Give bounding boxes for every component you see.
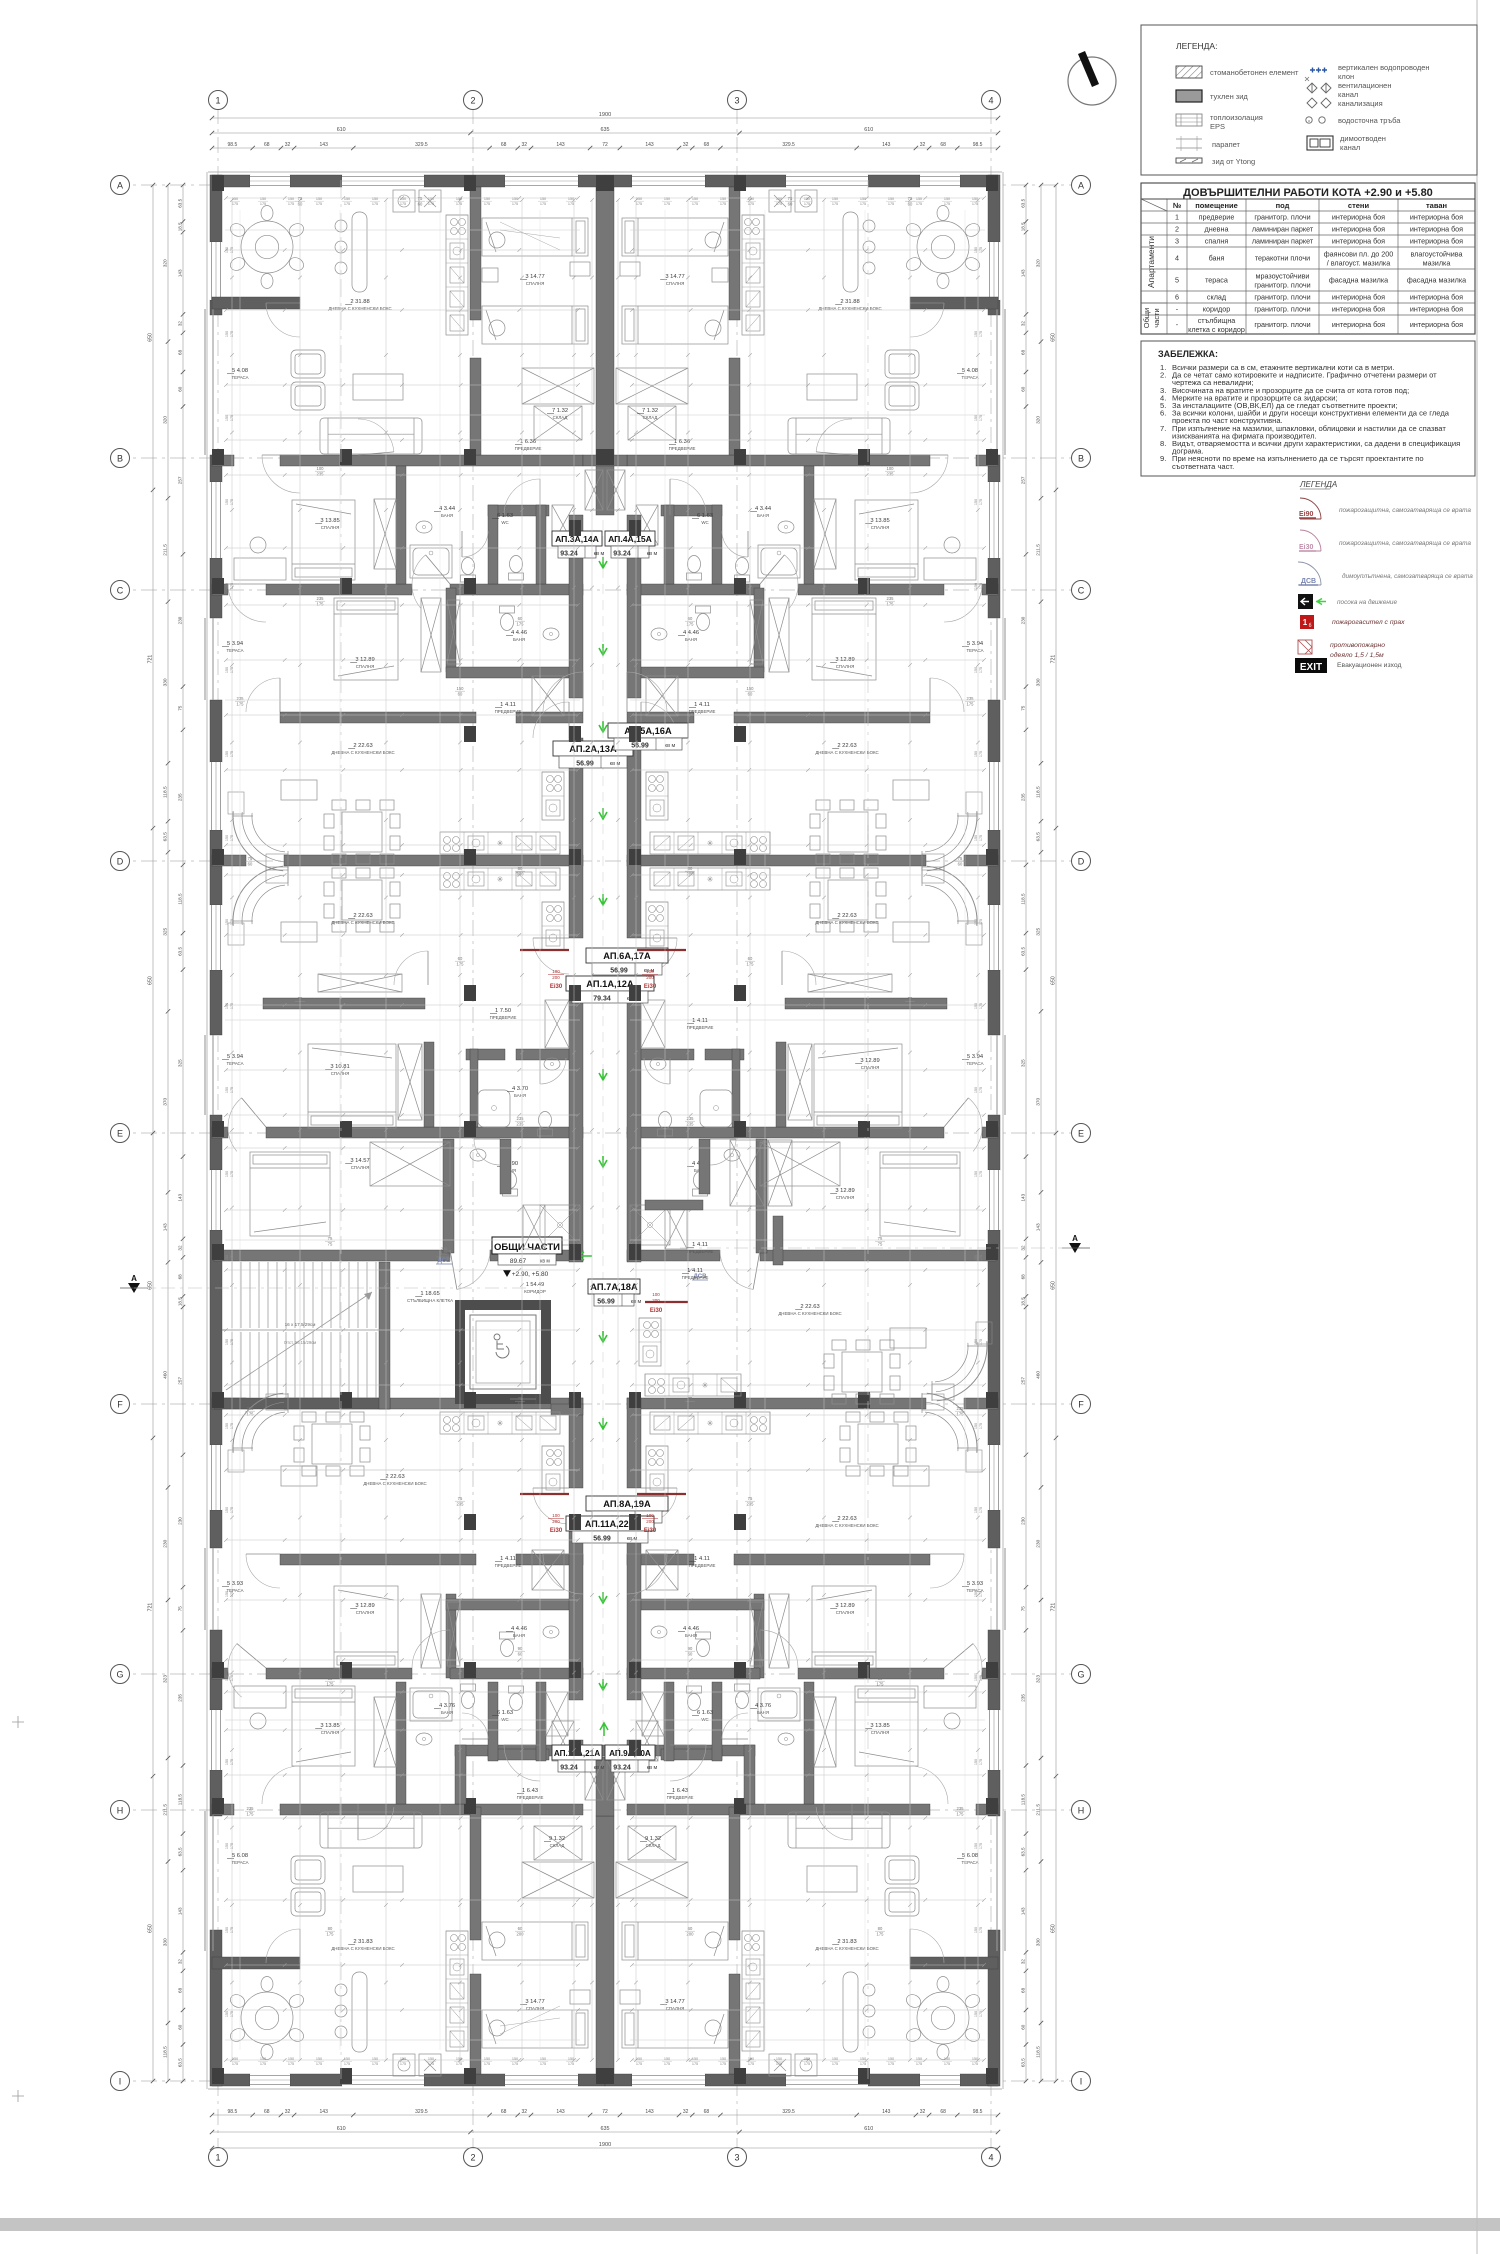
- svg-text:Ei30: Ei30: [644, 1528, 657, 1534]
- svg-text:ПРЕДВЕРИЕ: ПРЕДВЕРИЕ: [669, 446, 696, 451]
- svg-text:150: 150: [974, 1591, 978, 1597]
- svg-text:235: 235: [887, 472, 895, 477]
- svg-text:150: 150: [720, 2057, 726, 2061]
- svg-text:ДНЕВНА С КУХНЕНСКИ БОКС: ДНЕВНА С КУХНЕНСКИ БОКС: [363, 1481, 426, 1486]
- svg-text:КОРИДОР: КОРИДОР: [524, 1289, 546, 1294]
- svg-text:175: 175: [748, 202, 754, 206]
- svg-text:175: 175: [230, 1171, 234, 1177]
- svg-text:БАНЯ: БАНЯ: [513, 637, 525, 642]
- svg-text:+2.90, +5.80: +2.90, +5.80: [512, 1271, 549, 1278]
- svg-text:3 14.57: 3 14.57: [350, 1158, 369, 1164]
- svg-text:150: 150: [974, 1507, 978, 1513]
- svg-text:150: 150: [776, 197, 782, 201]
- svg-text:370: 370: [162, 1097, 168, 1105]
- svg-text:175: 175: [944, 2062, 950, 2066]
- svg-text:1 4.11: 1 4.11: [500, 702, 516, 708]
- svg-text:60: 60: [958, 862, 963, 867]
- svg-text:2 31.88: 2 31.88: [840, 299, 859, 305]
- svg-text:60: 60: [788, 202, 793, 207]
- svg-text:150: 150: [832, 2057, 838, 2061]
- svg-text:150: 150: [974, 499, 978, 505]
- svg-text:230: 230: [1035, 1539, 1041, 1547]
- svg-text:интериорна боя: интериорна боя: [1332, 305, 1385, 314]
- svg-text:противопожарно: противопожарно: [1330, 642, 1385, 649]
- svg-text:72: 72: [602, 142, 608, 148]
- svg-text:75: 75: [298, 996, 303, 1001]
- svg-text:1 4.11: 1 4.11: [694, 702, 710, 708]
- svg-text:235: 235: [317, 472, 325, 477]
- svg-text:118.5: 118.5: [1020, 1794, 1025, 1806]
- svg-text:№: №: [1173, 201, 1181, 210]
- svg-text:175: 175: [230, 1759, 234, 1765]
- svg-text:4 3.76: 4 3.76: [439, 1703, 455, 1709]
- svg-text:F: F: [117, 1400, 123, 1410]
- svg-text:257: 257: [1020, 1377, 1025, 1385]
- svg-text:гранитогр. плочи: гранитогр. плочи: [1254, 305, 1310, 314]
- svg-text:4 3.70: 4 3.70: [512, 1086, 528, 1092]
- svg-text:150: 150: [540, 2057, 546, 2061]
- svg-text:610: 610: [864, 2126, 873, 2132]
- svg-text:1: 1: [215, 96, 220, 106]
- svg-text:60: 60: [878, 1676, 883, 1681]
- svg-text:150: 150: [288, 2057, 294, 2061]
- svg-text:✳: ✳: [706, 839, 713, 848]
- svg-text:150: 150: [225, 415, 229, 421]
- svg-text:150: 150: [225, 751, 229, 757]
- svg-text:175: 175: [344, 202, 350, 206]
- svg-text:175: 175: [832, 2062, 838, 2066]
- svg-text:235: 235: [957, 1806, 965, 1811]
- svg-text:1 6.43: 1 6.43: [522, 1788, 538, 1794]
- svg-text:✳: ✳: [497, 1419, 504, 1428]
- svg-text:143: 143: [645, 142, 654, 148]
- svg-text:175: 175: [860, 202, 866, 206]
- svg-text:32: 32: [177, 321, 182, 327]
- svg-text:150: 150: [484, 2057, 490, 2061]
- svg-text:175: 175: [517, 622, 525, 627]
- svg-text:175: 175: [979, 751, 983, 757]
- svg-text:150: 150: [776, 2057, 782, 2061]
- svg-text:150: 150: [540, 197, 546, 201]
- svg-text:150: 150: [225, 1003, 229, 1009]
- svg-text:175: 175: [230, 1339, 234, 1345]
- svg-text:235: 235: [177, 793, 182, 801]
- svg-text:пожарозащитна, самозатваряща с: пожарозащитна, самозатваряща се врата: [1339, 507, 1471, 514]
- svg-text:235: 235: [177, 1694, 182, 1702]
- svg-text:610: 610: [864, 127, 873, 133]
- svg-text:175: 175: [979, 1591, 983, 1597]
- svg-text:9 1.32: 9 1.32: [645, 1836, 661, 1842]
- svg-text:60: 60: [418, 202, 423, 207]
- svg-text:150: 150: [225, 1087, 229, 1093]
- svg-text:150: 150: [512, 197, 518, 201]
- svg-text:интериорна боя: интериорна боя: [1410, 305, 1463, 314]
- svg-text:СПАЛНЯ: СПАЛНЯ: [356, 664, 375, 669]
- svg-text:влагоустойчива: влагоустойчива: [1410, 250, 1462, 259]
- svg-text:7 1.32: 7 1.32: [642, 408, 658, 414]
- svg-text:АП.6А,17А: АП.6А,17А: [603, 951, 651, 961]
- svg-text:175: 175: [979, 2011, 983, 2017]
- svg-text:мазилка: мазилка: [1423, 259, 1451, 268]
- svg-text:150: 150: [344, 2057, 350, 2061]
- svg-text:257: 257: [177, 1377, 182, 1385]
- svg-text:98.5: 98.5: [973, 2109, 983, 2115]
- svg-text:200: 200: [517, 1932, 525, 1937]
- svg-text:3: 3: [734, 2153, 739, 2163]
- svg-text:143: 143: [1020, 269, 1025, 277]
- svg-text:150: 150: [692, 197, 698, 201]
- svg-text:6 1.63: 6 1.63: [697, 1710, 713, 1716]
- svg-text:2 31.83: 2 31.83: [353, 1939, 372, 1945]
- svg-text:СПАЛНЯ: СПАЛНЯ: [861, 1065, 880, 1070]
- svg-text:175: 175: [230, 1087, 234, 1093]
- svg-text:118.5: 118.5: [1035, 786, 1041, 798]
- svg-text:150: 150: [225, 1507, 229, 1513]
- svg-text:150: 150: [225, 247, 229, 253]
- svg-text:посока на движение: посока на движение: [1337, 598, 1397, 606]
- svg-text:150: 150: [974, 919, 978, 925]
- svg-text:63.5: 63.5: [177, 946, 182, 955]
- svg-text:7.: 7.: [1160, 424, 1166, 433]
- svg-text:63.5: 63.5: [177, 198, 182, 207]
- svg-text:150: 150: [225, 919, 229, 925]
- svg-text:175: 175: [979, 1843, 983, 1849]
- svg-text:150: 150: [225, 499, 229, 505]
- svg-text:175: 175: [484, 2062, 490, 2066]
- svg-text:СПАЛНЯ: СПАЛНЯ: [321, 1730, 340, 1735]
- svg-text:257: 257: [177, 476, 182, 484]
- svg-text:2 31.88: 2 31.88: [350, 299, 369, 305]
- svg-text:1: 1: [1175, 213, 1179, 222]
- svg-text:ТЕРАСА: ТЕРАСА: [961, 375, 978, 380]
- svg-text:175: 175: [916, 2062, 922, 2066]
- svg-text:68: 68: [1020, 1274, 1025, 1280]
- svg-text:Апартаменти: Апартаменти: [1146, 236, 1156, 288]
- svg-text:68: 68: [940, 142, 946, 148]
- svg-text:150: 150: [225, 1423, 229, 1429]
- svg-text:ПРЕДВЕРИЕ: ПРЕДВЕРИЕ: [495, 709, 522, 714]
- svg-text:175: 175: [327, 1682, 335, 1687]
- svg-text:100: 100: [887, 466, 895, 471]
- svg-text:150: 150: [944, 2057, 950, 2061]
- svg-text:СПАЛНЯ: СПАЛНЯ: [351, 1165, 370, 1170]
- svg-text:175: 175: [888, 2062, 894, 2066]
- svg-text:интериорна боя: интериорна боя: [1332, 213, 1385, 222]
- svg-text:150: 150: [636, 197, 642, 201]
- svg-text:ТЕРАСА: ТЕРАСА: [226, 1061, 243, 1066]
- svg-text:75: 75: [748, 1496, 753, 1501]
- svg-text:WC: WC: [501, 520, 508, 525]
- svg-text:димоотводен: димоотводен: [1340, 134, 1386, 143]
- svg-text:650: 650: [147, 976, 153, 985]
- svg-text:32: 32: [285, 2109, 291, 2115]
- svg-text:68: 68: [1020, 1987, 1025, 1993]
- svg-text:150: 150: [916, 197, 922, 201]
- svg-text:60: 60: [328, 1676, 333, 1681]
- svg-text:650: 650: [147, 1281, 153, 1290]
- svg-text:175: 175: [230, 1423, 234, 1429]
- svg-text:143: 143: [645, 2109, 654, 2115]
- svg-text:330: 330: [1035, 678, 1041, 686]
- svg-text:3 14.77: 3 14.77: [665, 1999, 684, 2005]
- svg-text:ДСВ: ДСВ: [438, 1258, 452, 1264]
- svg-text:175: 175: [804, 202, 810, 206]
- svg-text:235: 235: [517, 1122, 525, 1127]
- svg-text:150: 150: [372, 197, 378, 201]
- svg-text:235: 235: [1020, 1694, 1025, 1702]
- svg-text:вертикален водопроводен: вертикален водопроводен: [1338, 63, 1430, 72]
- svg-text:СПАЛНЯ: СПАЛНЯ: [356, 1610, 375, 1615]
- svg-text:175: 175: [400, 202, 406, 206]
- svg-text:зид от Ytong: зид от Ytong: [1212, 157, 1255, 166]
- svg-text:стени: стени: [1348, 201, 1370, 210]
- svg-text:75: 75: [908, 196, 913, 201]
- svg-text:✳: ✳: [497, 875, 504, 884]
- svg-text:650: 650: [147, 333, 153, 342]
- svg-text:4: 4: [988, 96, 993, 106]
- svg-text:3 14.77: 3 14.77: [665, 274, 684, 280]
- svg-text:интериорна боя: интериорна боя: [1410, 225, 1463, 234]
- svg-text:2: 2: [470, 2153, 475, 2163]
- svg-text:150: 150: [344, 197, 350, 201]
- svg-text:кв м: кв м: [540, 1259, 550, 1265]
- svg-text:32: 32: [522, 142, 528, 148]
- svg-text:2 22.63: 2 22.63: [837, 913, 856, 919]
- svg-text:610: 610: [337, 127, 346, 133]
- svg-text:3 12.89: 3 12.89: [835, 1603, 854, 1609]
- svg-text:150: 150: [636, 2057, 642, 2061]
- svg-text:F: F: [1078, 1400, 1084, 1410]
- svg-text:150: 150: [568, 197, 574, 201]
- svg-text:230: 230: [162, 1539, 168, 1547]
- svg-text:клетка с коридор: клетка с коридор: [1188, 325, 1245, 334]
- svg-text:175: 175: [232, 202, 238, 206]
- svg-text:63.5: 63.5: [177, 1847, 182, 1856]
- svg-text:АП.1А,12А: АП.1А,12А: [586, 979, 634, 989]
- svg-text:150: 150: [316, 2057, 322, 2061]
- svg-text:32: 32: [1020, 1959, 1025, 1965]
- svg-text:175: 175: [230, 751, 234, 757]
- svg-text:650: 650: [1050, 1281, 1056, 1290]
- svg-text:175: 175: [972, 2062, 978, 2066]
- svg-text:68: 68: [177, 1274, 182, 1280]
- svg-text:150: 150: [974, 583, 978, 589]
- svg-text:200: 200: [297, 1002, 305, 1007]
- svg-text:325: 325: [162, 927, 168, 935]
- svg-text:клон: клон: [1338, 72, 1354, 81]
- svg-text:СТЪЛБИЩНА КЛЕТКА: СТЪЛБИЩНА КЛЕТКА: [407, 1298, 453, 1303]
- svg-text:E: E: [117, 1129, 123, 1139]
- svg-text:G: G: [116, 1670, 123, 1680]
- svg-text:320: 320: [162, 259, 168, 267]
- svg-text:интериорна боя: интериорна боя: [1410, 237, 1463, 246]
- svg-text:кв м: кв м: [647, 551, 658, 557]
- svg-text:теракотни плочи: теракотни плочи: [1255, 254, 1310, 263]
- svg-text:АП.11А,22А: АП.11А,22А: [585, 1519, 636, 1529]
- svg-text:СКЛАД: СКЛАД: [646, 1843, 661, 1848]
- svg-text:/ влагоуст. мазилка: / влагоуст. мазилка: [1327, 259, 1390, 268]
- svg-text:ТЕРАСА: ТЕРАСА: [226, 648, 243, 653]
- svg-text:211.5: 211.5: [1035, 544, 1041, 556]
- svg-text:68: 68: [704, 142, 710, 148]
- svg-text:ПРЕДВЕРИЕ: ПРЕДВЕРИЕ: [687, 1249, 714, 1254]
- svg-text:721: 721: [147, 1603, 153, 1612]
- svg-text:1 4.11: 1 4.11: [692, 1242, 708, 1248]
- svg-text:175: 175: [747, 962, 755, 967]
- svg-text:75: 75: [248, 856, 253, 861]
- svg-text:150: 150: [748, 2057, 754, 2061]
- svg-text:пожарогасител с прах: пожарогасител с прах: [1332, 619, 1405, 626]
- svg-text:175: 175: [979, 667, 983, 673]
- svg-text:143: 143: [882, 2109, 891, 2115]
- svg-text:6 1.63: 6 1.63: [697, 513, 713, 519]
- svg-text:одеяло 1,5 / 1,5м: одеяло 1,5 / 1,5м: [1330, 651, 1384, 659]
- svg-text:175: 175: [664, 202, 670, 206]
- svg-text:D: D: [117, 857, 124, 867]
- svg-text:175: 175: [944, 202, 950, 206]
- svg-text:175: 175: [664, 2062, 670, 2066]
- svg-text:98.5: 98.5: [228, 142, 238, 148]
- svg-text:АП.8А,19А: АП.8А,19А: [603, 1499, 651, 1509]
- svg-text:парапет: парапет: [1212, 140, 1241, 149]
- svg-text:143: 143: [556, 2109, 565, 2115]
- svg-text:63.5: 63.5: [1020, 2058, 1025, 2067]
- svg-text:тераса: тераса: [1205, 276, 1228, 285]
- svg-text:721: 721: [1050, 1603, 1056, 1612]
- svg-text:175: 175: [888, 202, 894, 206]
- svg-text:75: 75: [908, 996, 913, 1001]
- svg-text:150: 150: [568, 2057, 574, 2061]
- svg-text:WC: WC: [701, 520, 708, 525]
- svg-text:ПРЕДВЕРИЕ: ПРЕДВЕРИЕ: [490, 1015, 517, 1020]
- svg-text:3 12.89: 3 12.89: [860, 1058, 879, 1064]
- svg-text:175: 175: [957, 1412, 965, 1417]
- svg-text:СПАЛНЯ: СПАЛНЯ: [871, 1730, 890, 1735]
- svg-text:димоуплътнена, самозатваряща с: димоуплътнена, самозатваряща се врата: [1342, 572, 1473, 580]
- svg-text:63.5: 63.5: [177, 2058, 182, 2067]
- svg-text:175: 175: [288, 2062, 294, 2066]
- svg-text:150: 150: [260, 197, 266, 201]
- svg-text:3 14.77: 3 14.77: [525, 1999, 544, 2005]
- svg-text:ПРЕДВЕРИЕ: ПРЕДВЕРИЕ: [667, 1795, 694, 1800]
- svg-text:БАНЯ: БАНЯ: [757, 513, 769, 518]
- svg-text:топлоизолация: топлоизолация: [1210, 113, 1263, 122]
- svg-text:143: 143: [177, 1907, 182, 1915]
- svg-text:211.5: 211.5: [1035, 1804, 1041, 1816]
- svg-text:5 4.08: 5 4.08: [962, 368, 978, 374]
- svg-text:150: 150: [664, 197, 670, 201]
- svg-text:ДСВ: ДСВ: [1301, 578, 1316, 585]
- svg-text:60: 60: [458, 956, 463, 961]
- svg-text:БАНЯ: БАНЯ: [441, 1710, 453, 1715]
- svg-text:СКЛАД: СКЛАД: [550, 1843, 565, 1848]
- svg-text:интериорна боя: интериорна боя: [1332, 237, 1385, 246]
- svg-text:4 4.46: 4 4.46: [511, 1626, 527, 1632]
- svg-text:175: 175: [692, 2062, 698, 2066]
- svg-text:склад: склад: [1207, 293, 1227, 302]
- svg-text:235: 235: [247, 1806, 255, 1811]
- svg-text:150: 150: [974, 835, 978, 841]
- svg-text:кв м: кв м: [665, 743, 676, 749]
- svg-text:118.5: 118.5: [1020, 893, 1025, 905]
- svg-text:ПРЕДВЕРИЕ: ПРЕДВЕРИЕ: [515, 446, 542, 451]
- svg-text:175: 175: [877, 1682, 885, 1687]
- svg-text:150: 150: [974, 1927, 978, 1933]
- svg-text:230: 230: [177, 616, 182, 624]
- svg-text:68: 68: [704, 2109, 710, 2115]
- svg-text:5 3.94: 5 3.94: [967, 641, 984, 647]
- svg-text:части: части: [1152, 308, 1161, 327]
- svg-text:4 3.44: 4 3.44: [439, 506, 456, 512]
- svg-text:интериорна боя: интериорна боя: [1332, 320, 1385, 329]
- svg-text:175: 175: [456, 202, 462, 206]
- svg-text:175: 175: [776, 2062, 782, 2066]
- svg-text:118.5: 118.5: [1035, 2046, 1041, 2058]
- svg-text:89.67: 89.67: [510, 1258, 527, 1265]
- svg-text:68: 68: [501, 2109, 507, 2115]
- svg-text:150: 150: [232, 2057, 238, 2061]
- svg-text:175: 175: [540, 202, 546, 206]
- svg-text:75: 75: [177, 1606, 182, 1612]
- svg-text:150: 150: [664, 2057, 670, 2061]
- svg-text:90: 90: [688, 1646, 693, 1651]
- svg-text:БАНЯ: БАНЯ: [514, 1093, 526, 1098]
- svg-text:ламиниран паркет: ламиниран паркет: [1252, 237, 1314, 246]
- svg-text:175: 175: [512, 202, 518, 206]
- svg-text:4: 4: [988, 2153, 993, 2163]
- svg-text:175: 175: [979, 835, 983, 841]
- svg-text:175: 175: [316, 2062, 322, 2066]
- svg-text:175: 175: [979, 1171, 983, 1177]
- svg-text:175: 175: [230, 667, 234, 673]
- svg-text:ПРЕДВЕРИЕ: ПРЕДВЕРИЕ: [682, 1275, 709, 1280]
- svg-text:60: 60: [688, 1652, 693, 1657]
- svg-text:32: 32: [683, 142, 689, 148]
- svg-text:175: 175: [230, 2011, 234, 2017]
- svg-text:C: C: [1078, 586, 1085, 596]
- svg-text:гранитогр. плочи: гранитогр. плочи: [1254, 213, 1310, 222]
- svg-text:100: 100: [646, 1513, 654, 1518]
- svg-text:150: 150: [974, 247, 978, 253]
- svg-text:175: 175: [230, 1507, 234, 1513]
- svg-text:съответната част.: съответната част.: [1172, 462, 1234, 471]
- svg-text:канализация: канализация: [1338, 99, 1383, 108]
- svg-text:3 13.85: 3 13.85: [320, 1723, 339, 1729]
- svg-text:фасадна мазилка: фасадна мазилка: [1407, 276, 1466, 285]
- svg-text:4 4.46: 4 4.46: [683, 1626, 699, 1632]
- svg-text:235: 235: [457, 1502, 465, 1507]
- svg-text:150: 150: [225, 1843, 229, 1849]
- svg-text:150: 150: [456, 197, 462, 201]
- svg-text:150: 150: [225, 1927, 229, 1933]
- svg-text:6.: 6.: [1160, 409, 1166, 418]
- svg-text:235: 235: [687, 1122, 695, 1127]
- svg-text:СПАЛНЯ: СПАЛНЯ: [526, 281, 545, 286]
- svg-text:150: 150: [804, 2057, 810, 2061]
- svg-text:150: 150: [974, 1087, 978, 1093]
- svg-text:3: 3: [1175, 237, 1179, 246]
- svg-text:4 3.44: 4 3.44: [755, 506, 772, 512]
- svg-text:I: I: [1080, 2077, 1083, 2087]
- svg-text:650: 650: [1050, 976, 1056, 985]
- svg-text:8.: 8.: [1160, 439, 1166, 448]
- svg-text:150: 150: [225, 2011, 229, 2017]
- svg-text:118.5: 118.5: [177, 1794, 182, 1806]
- svg-text:32: 32: [522, 2109, 528, 2115]
- svg-text:150: 150: [974, 1843, 978, 1849]
- svg-text:32: 32: [1020, 321, 1025, 327]
- svg-text:175: 175: [372, 2062, 378, 2066]
